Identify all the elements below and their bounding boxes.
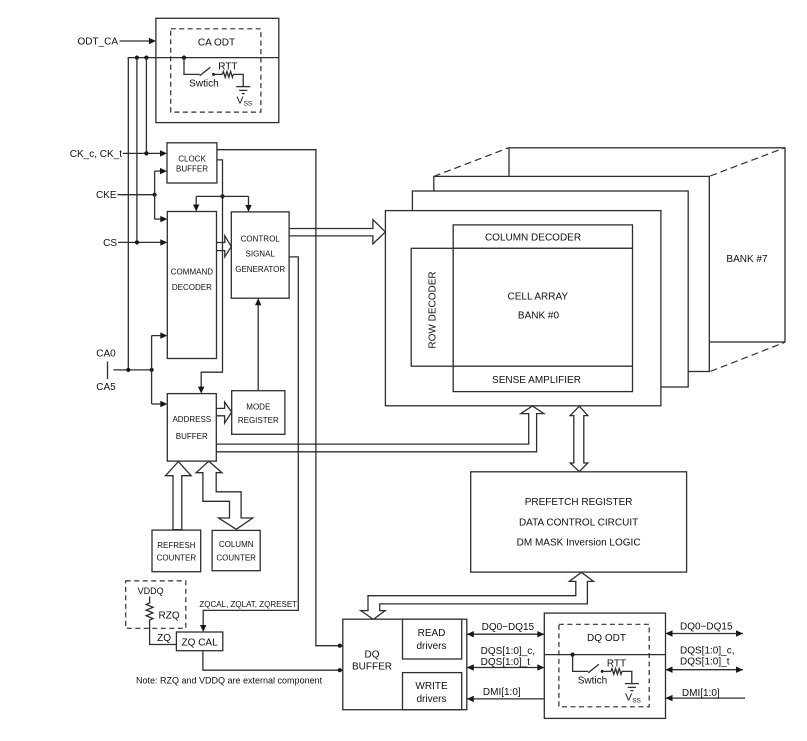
svg-text:DMI[1:0]: DMI[1:0] xyxy=(682,688,720,699)
svg-text:SS: SS xyxy=(244,101,253,108)
svg-text:DMI[1:0]: DMI[1:0] xyxy=(483,687,521,698)
svg-text:DQS[1:0]_c,: DQS[1:0]_c, xyxy=(680,645,734,656)
svg-text:DQS[1:0]_c,: DQS[1:0]_c, xyxy=(481,646,535,657)
svg-text:drivers: drivers xyxy=(416,694,446,705)
svg-text:COMMAND: COMMAND xyxy=(171,268,213,277)
svg-text:CKE: CKE xyxy=(96,190,117,201)
svg-text:PREFETCH REGISTER: PREFETCH REGISTER xyxy=(525,497,633,508)
svg-text:DQS[1:0]_t: DQS[1:0]_t xyxy=(481,657,531,668)
svg-text:CS: CS xyxy=(103,238,117,249)
svg-text:SIGNAL: SIGNAL xyxy=(246,250,276,259)
svg-text:REGISTER: REGISTER xyxy=(238,416,279,425)
svg-text:BUFFER: BUFFER xyxy=(176,432,208,441)
svg-text:ADDRESS: ADDRESS xyxy=(172,415,211,424)
svg-text:RTT: RTT xyxy=(218,61,237,72)
svg-text:CONTROL: CONTROL xyxy=(241,234,281,243)
svg-text:DQ: DQ xyxy=(365,650,380,661)
svg-text:WRITE: WRITE xyxy=(415,681,448,692)
svg-text:COLUMN DECODER: COLUMN DECODER xyxy=(485,232,581,243)
svg-text:CK_c, CK_t: CK_c, CK_t xyxy=(70,149,122,160)
svg-text:CA0: CA0 xyxy=(96,349,116,360)
svg-text:DECODER: DECODER xyxy=(172,283,212,292)
svg-text:BUFFER: BUFFER xyxy=(352,661,392,672)
svg-text:V: V xyxy=(237,94,244,106)
svg-text:CLOCK: CLOCK xyxy=(178,154,206,163)
svg-text:GENERATOR: GENERATOR xyxy=(235,265,285,274)
svg-text:ZQCAL, ZQLAT, ZQRESET: ZQCAL, ZQLAT, ZQRESET xyxy=(199,600,297,609)
svg-text:SENSE AMPLIFIER: SENSE AMPLIFIER xyxy=(492,375,581,386)
svg-text:ODT_CA: ODT_CA xyxy=(77,36,118,47)
svg-text:DM MASK Inversion LOGIC: DM MASK Inversion LOGIC xyxy=(517,538,641,549)
svg-text:DQS[1:0]_t: DQS[1:0]_t xyxy=(680,656,730,667)
svg-text:CA ODT: CA ODT xyxy=(198,38,235,49)
svg-text:BUFFER: BUFFER xyxy=(176,164,208,173)
svg-text:DQ0−DQ15: DQ0−DQ15 xyxy=(680,622,733,633)
svg-text:RTT: RTT xyxy=(607,658,626,669)
svg-text:BANK #0: BANK #0 xyxy=(518,310,560,321)
svg-text:drivers: drivers xyxy=(416,641,446,652)
svg-text:REFRESH: REFRESH xyxy=(157,541,195,550)
svg-text:SS: SS xyxy=(632,698,641,705)
svg-text:COUNTER: COUNTER xyxy=(216,553,256,562)
svg-text:CA5: CA5 xyxy=(96,382,116,393)
svg-text:Note: RZQ and VDDQ are externa: Note: RZQ and VDDQ are external componen… xyxy=(136,676,323,686)
svg-text:VDDQ: VDDQ xyxy=(138,586,164,596)
svg-text:DATA CONTROL CIRCUIT: DATA CONTROL CIRCUIT xyxy=(519,518,638,529)
svg-text:Swtich: Swtich xyxy=(578,675,607,686)
svg-text:MODE: MODE xyxy=(246,402,270,411)
svg-text:ZQ: ZQ xyxy=(157,633,171,644)
svg-text:COLUMN: COLUMN xyxy=(219,540,254,549)
svg-text:ROW DECODER: ROW DECODER xyxy=(427,271,438,348)
svg-text:DQ0−DQ15: DQ0−DQ15 xyxy=(482,622,535,633)
svg-text:Swtich: Swtich xyxy=(189,78,218,89)
svg-text:RZQ: RZQ xyxy=(159,610,180,621)
svg-text:DQ ODT: DQ ODT xyxy=(587,633,626,644)
svg-text:READ: READ xyxy=(418,628,446,639)
svg-text:COUNTER: COUNTER xyxy=(157,553,197,562)
svg-text:ZQ CAL: ZQ CAL xyxy=(182,638,219,649)
svg-text:V: V xyxy=(625,691,632,703)
svg-text:CELL ARRAY: CELL ARRAY xyxy=(508,292,569,303)
svg-text:BANK #7: BANK #7 xyxy=(726,254,768,265)
